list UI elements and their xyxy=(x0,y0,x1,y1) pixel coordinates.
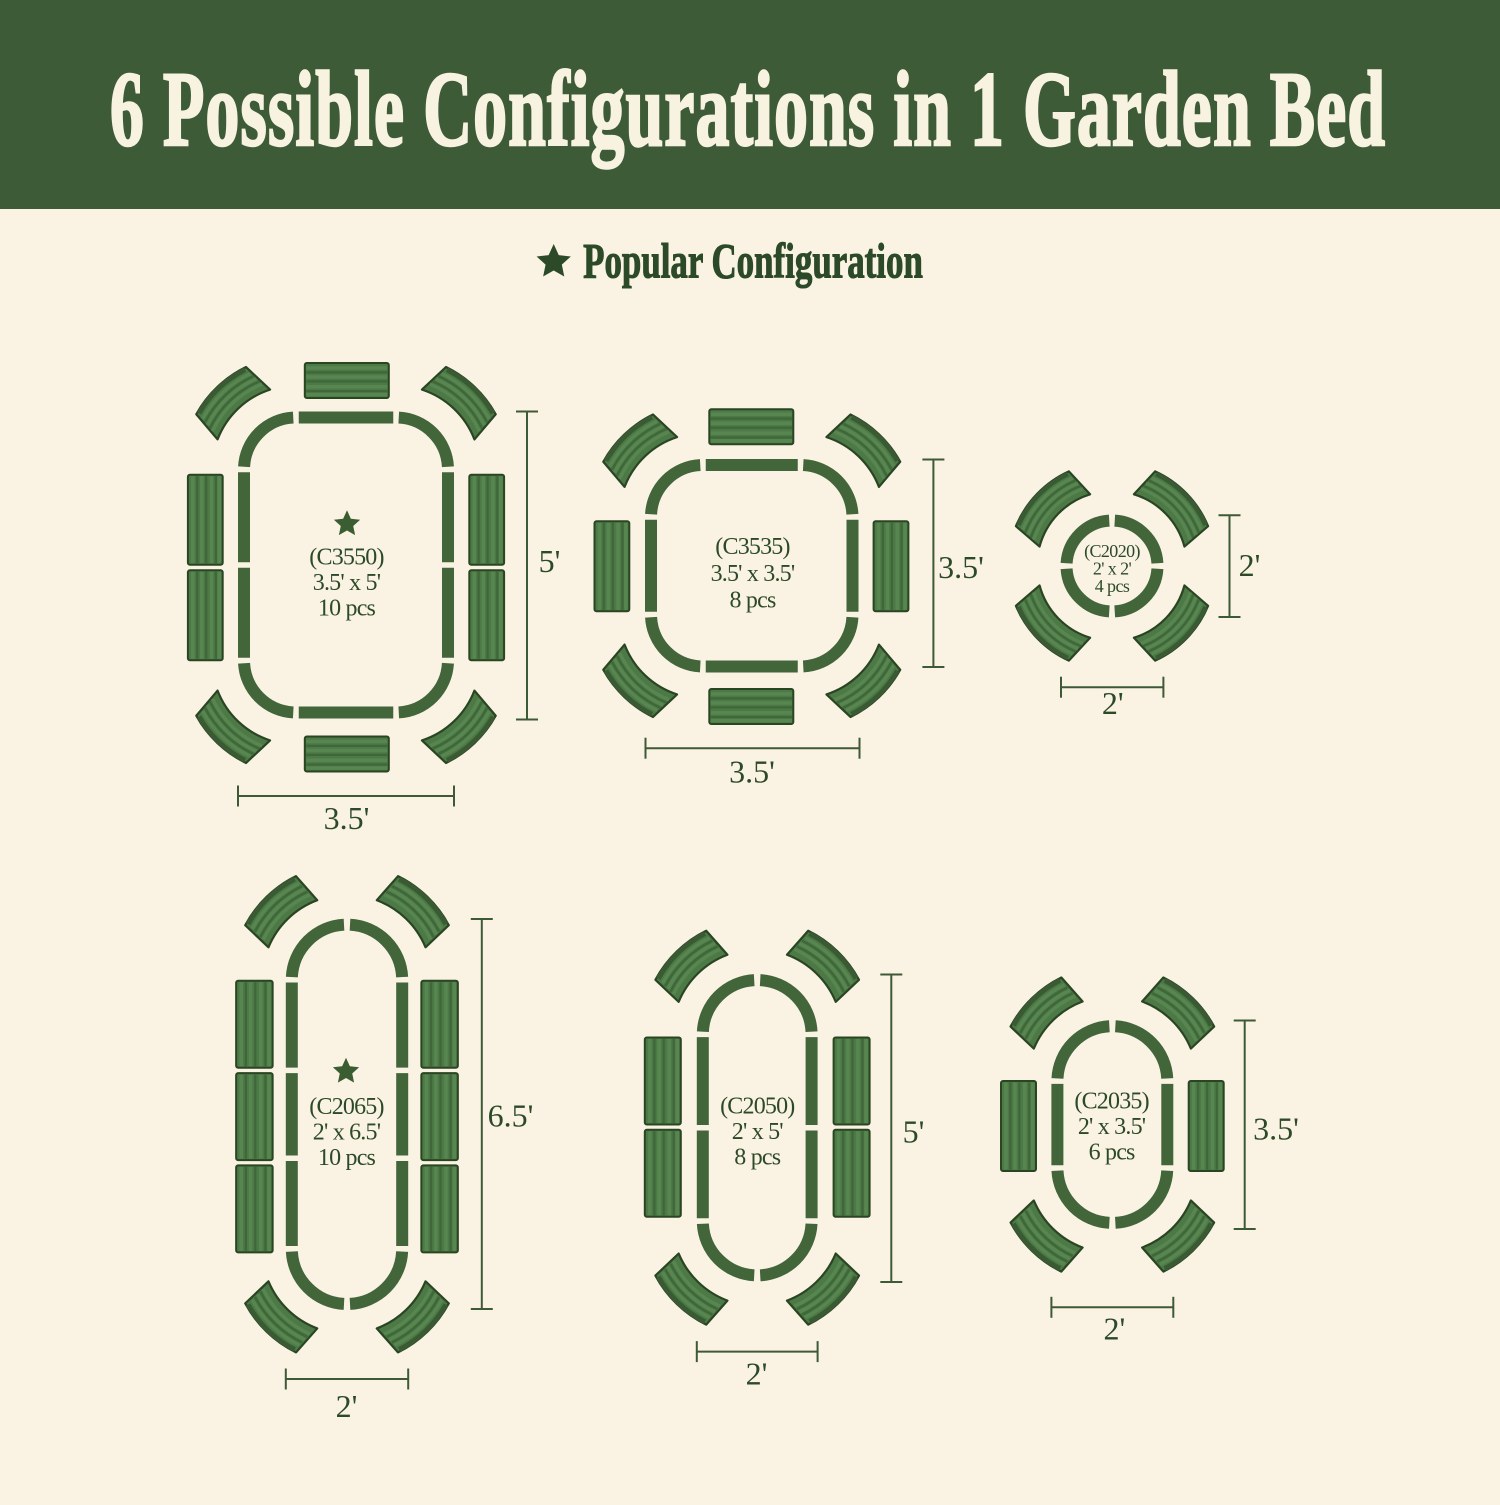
svg-text:2': 2' xyxy=(1239,547,1261,583)
svg-text:4 pcs: 4 pcs xyxy=(1095,576,1130,596)
svg-text:2' x 3.5': 2' x 3.5' xyxy=(1078,1114,1146,1140)
svg-text:10 pcs: 10 pcs xyxy=(318,596,376,622)
svg-text:2' x 5': 2' x 5' xyxy=(732,1119,784,1145)
svg-text:10 pcs: 10 pcs xyxy=(318,1145,376,1171)
svg-text:Popular Configuration: Popular Configuration xyxy=(583,235,923,289)
svg-text:2': 2' xyxy=(746,1356,768,1392)
svg-text:(C3550): (C3550) xyxy=(309,545,383,571)
svg-text:2': 2' xyxy=(1102,685,1124,721)
svg-text:5': 5' xyxy=(903,1114,925,1150)
svg-text:5': 5' xyxy=(539,543,561,579)
svg-text:2' x 6.5': 2' x 6.5' xyxy=(313,1120,381,1146)
svg-text:6 pcs: 6 pcs xyxy=(1089,1140,1135,1166)
svg-text:3.5': 3.5' xyxy=(729,754,775,790)
svg-text:8 pcs: 8 pcs xyxy=(730,588,776,614)
svg-text:6.5': 6.5' xyxy=(488,1098,534,1134)
svg-text:(C2065): (C2065) xyxy=(309,1094,383,1120)
svg-text:3.5': 3.5' xyxy=(938,549,984,585)
svg-text:3.5' x 5': 3.5' x 5' xyxy=(313,570,381,596)
svg-text:6 Possible Configurations in 1: 6 Possible Configurations in 1 Garden Be… xyxy=(110,51,1386,169)
svg-text:(C2035): (C2035) xyxy=(1074,1089,1148,1115)
svg-text:3.5': 3.5' xyxy=(324,800,370,836)
svg-text:2': 2' xyxy=(336,1388,358,1424)
svg-text:3.5': 3.5' xyxy=(1253,1110,1299,1146)
svg-text:(C2050): (C2050) xyxy=(720,1093,794,1119)
svg-text:8 pcs: 8 pcs xyxy=(734,1144,780,1170)
svg-text:2': 2' xyxy=(1104,1311,1126,1347)
svg-text:3.5' x 3.5': 3.5' x 3.5' xyxy=(711,561,795,587)
svg-text:(C3535): (C3535) xyxy=(715,534,789,560)
